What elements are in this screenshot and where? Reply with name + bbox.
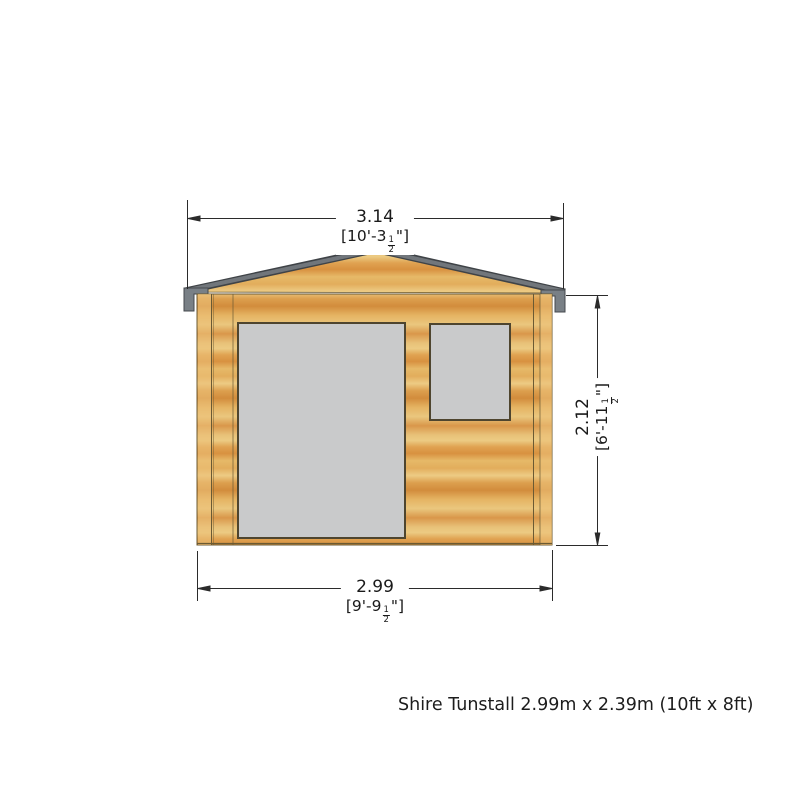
roof-width-metric-value: 3.14	[341, 207, 409, 227]
product-dimension-diagram: 3.14 [10'-312"] 2.12 [6'-1112"] 2.99 [9'…	[0, 0, 800, 800]
base-width-imperial-value: [9'-912"]	[346, 597, 404, 625]
base-width-dimension: 2.99 [9'-912"]	[341, 577, 409, 625]
door	[238, 323, 405, 538]
wall-height-dimension: 2.12 [6'-1112"]	[573, 378, 621, 456]
wall-height-metric-value: 2.12	[573, 383, 593, 451]
window	[430, 324, 510, 420]
cabin-elevation-drawing	[0, 0, 800, 800]
fraction: 12	[383, 606, 390, 625]
product-caption: Shire Tunstall 2.99m x 2.39m (10ft x 8ft…	[398, 695, 753, 715]
fraction: 12	[387, 236, 394, 255]
fraction: 12	[602, 397, 621, 404]
roof-width-imperial-value: [10'-312"]	[341, 227, 409, 255]
roof-width-dimension: 3.14 [10'-312"]	[336, 207, 414, 255]
base-width-metric-value: 2.99	[346, 577, 404, 597]
wall-height-imperial-value: [6'-1112"]	[593, 383, 621, 451]
gable	[188, 251, 563, 293]
